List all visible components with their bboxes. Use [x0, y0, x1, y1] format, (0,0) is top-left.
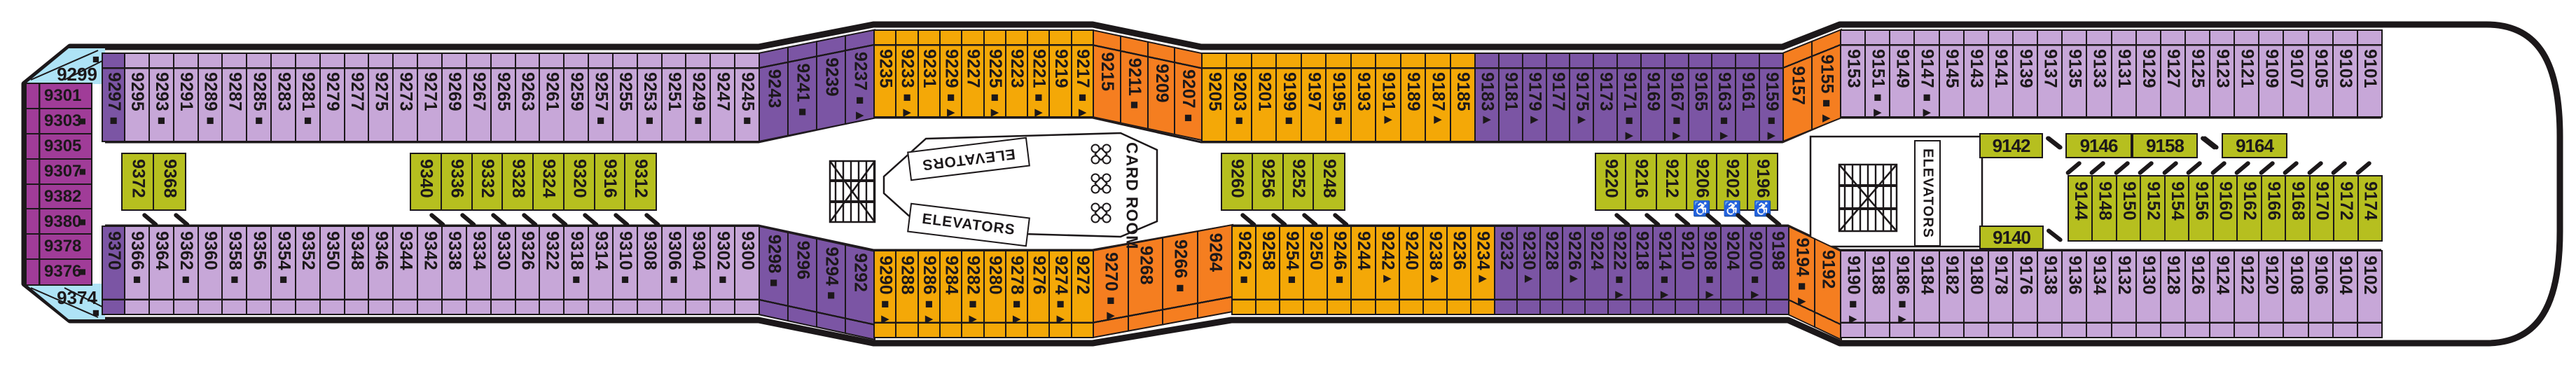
cabin-number: 9219 — [1052, 49, 1069, 88]
elevators-label: ELEVATORS — [1920, 148, 1936, 238]
cabin-9170[interactable]: 9170 — [2309, 175, 2335, 242]
cabin-number: 9346 — [373, 231, 390, 270]
cabin-9184[interactable]: 9184 — [1913, 250, 1940, 338]
cabin-9302[interactable]: 9302■ — [709, 226, 735, 315]
cabin-9175[interactable]: 9175▶ — [1569, 53, 1594, 142]
cabin-9286[interactable]: 9286■▶ — [917, 250, 941, 338]
cabin-9292[interactable]: 9292 — [845, 244, 875, 340]
sofa-bed-marker: ■ — [1626, 114, 1633, 127]
cabin-9209[interactable]: 9209 — [1147, 41, 1176, 135]
cabin-number: 9120 — [2263, 256, 2280, 295]
cabin-9164[interactable]: 9164 — [2222, 133, 2287, 158]
cabin-9206[interactable]: 9206♿ — [1686, 153, 1718, 211]
cabin-9249[interactable]: 9249■ — [685, 53, 711, 142]
sofa-bed-marker: ■ — [279, 273, 287, 286]
cabin-9310[interactable]: 9310■ — [612, 226, 638, 315]
cabin-9326[interactable]: 9326 — [515, 226, 541, 315]
cabin-9186[interactable]: 9186■▶ — [1889, 250, 1916, 338]
cabin-9176[interactable]: 9176 — [2012, 250, 2039, 338]
cabin-number: 9308 — [641, 231, 658, 270]
cabin-9340[interactable]: 9340 — [410, 153, 442, 211]
cabin-9190[interactable]: 9190■▶ — [1840, 250, 1867, 338]
cabin-number: 9137 — [2041, 49, 2058, 88]
cabin-9188[interactable]: 9188 — [1864, 250, 1891, 338]
cabin-9185[interactable]: 9185 — [1450, 53, 1476, 142]
cabin-9248[interactable]: 9248 — [1313, 153, 1345, 211]
cabin-9201[interactable]: 9201 — [1251, 53, 1277, 142]
cabin-9167[interactable]: 9167■▶ — [1664, 53, 1689, 142]
cabin-9230[interactable]: 9230▶ — [1516, 226, 1541, 315]
cabin-9109[interactable]: 9109 — [2258, 29, 2285, 118]
cabin-9278[interactable]: 9278■▶ — [1005, 250, 1029, 338]
sofa-bed-marker: ■ — [133, 273, 141, 286]
cabin-9258[interactable]: 9258 — [1255, 226, 1281, 315]
cabin-number: 9204 — [1724, 231, 1741, 270]
cabin-number: 9203 — [1231, 72, 1248, 111]
cabin-9154[interactable]: 9154 — [2164, 175, 2190, 242]
cabin-number: 9382 — [44, 187, 81, 207]
cabin-9267[interactable]: 9267 — [466, 53, 492, 142]
cabin-9225[interactable]: 9225■▶ — [983, 29, 1007, 118]
cabin-9181[interactable]: 9181 — [1498, 53, 1523, 142]
cabin-9150[interactable]: 9150 — [2116, 175, 2142, 242]
cabin-9328[interactable]: 9328 — [501, 153, 534, 211]
cabin-9126[interactable]: 9126 — [2184, 250, 2211, 338]
cabin-9382[interactable]: 9382 — [25, 183, 92, 210]
cabin-number: 9215 — [1098, 52, 1116, 91]
cabin-9348[interactable]: 9348 — [344, 226, 370, 315]
cabin-9277[interactable]: 9277 — [344, 53, 370, 142]
cabin-9231[interactable]: 9231 — [917, 29, 941, 118]
cabin-9338[interactable]: 9338 — [441, 226, 467, 315]
cabin-9300[interactable]: 9300 — [734, 226, 760, 315]
cabin-9352[interactable]: 9352 — [295, 226, 321, 315]
cabin-9240[interactable]: 9240 — [1399, 226, 1425, 315]
cabin-9131[interactable]: 9131 — [2111, 29, 2138, 118]
cabin-9203[interactable]: 9203■ — [1226, 53, 1252, 142]
cabin-9237[interactable]: 9237■▶ — [845, 29, 875, 125]
cabin-9362[interactable]: 9362■ — [173, 226, 199, 315]
cabin-9132[interactable]: 9132 — [2111, 250, 2138, 338]
cabin-number: 9146 — [2080, 135, 2118, 157]
cabin-number: 9133 — [2091, 49, 2108, 88]
cabin-9208[interactable]: 9208■▶ — [1698, 226, 1722, 315]
cabin-9162[interactable]: 9162 — [2236, 175, 2262, 242]
cabin-number: 9167 — [1668, 72, 1685, 111]
cabin-9202[interactable]: 9202♿ — [1716, 153, 1748, 211]
cabin-9120[interactable]: 9120 — [2258, 250, 2285, 338]
third-berth-marker: ▶ — [947, 107, 955, 118]
cabin-9354[interactable]: 9354■ — [270, 226, 296, 315]
cabin-9360[interactable]: 9360 — [198, 226, 223, 315]
cabin-9218[interactable]: 9218 — [1630, 226, 1654, 315]
cabin-9215[interactable]: 9215 — [1093, 29, 1121, 124]
cabin-9144[interactable]: 9144 — [2068, 175, 2093, 242]
cabin-9156[interactable]: 9156 — [2188, 175, 2214, 242]
cabin-9198[interactable]: 9198 — [1766, 226, 1790, 315]
cabin-9250[interactable]: 9250 — [1303, 226, 1329, 315]
cabin-9159[interactable]: 9159■▶ — [1759, 53, 1784, 142]
cabin-9368[interactable]: 9368 — [153, 153, 186, 211]
cabin-9133[interactable]: 9133 — [2086, 29, 2112, 118]
cabin-9216[interactable]: 9216 — [1625, 153, 1657, 211]
cabin-9342[interactable]: 9342 — [417, 226, 443, 315]
third-berth-marker: ▶ — [1384, 114, 1392, 125]
cabin-9191[interactable]: 9191▶ — [1375, 53, 1401, 142]
cabin-9243[interactable]: 9243 — [759, 46, 789, 142]
section-top-fwd-violet: 9297■ — [102, 53, 124, 142]
cabin-9244[interactable]: 9244 — [1350, 226, 1376, 315]
cabin-9306[interactable]: 9306■ — [661, 226, 687, 315]
cabin-9289[interactable]: 9289■ — [198, 53, 223, 142]
cabin-9212[interactable]: 9212 — [1656, 153, 1688, 211]
cabin-9204[interactable]: 9204 — [1720, 226, 1745, 315]
cabin-9146[interactable]: 9146 — [2065, 133, 2132, 158]
cabin-9264[interactable]: 9264 — [1197, 224, 1233, 319]
cabin-9356[interactable]: 9356 — [246, 226, 272, 315]
cabin-9350[interactable]: 9350 — [319, 226, 345, 315]
cabin-9105[interactable]: 9105 — [2308, 29, 2334, 118]
cabin-9195[interactable]: 9195■ — [1325, 53, 1352, 142]
cabin-9165[interactable]: 9165 — [1688, 53, 1713, 142]
cabin-9254[interactable]: 9254■ — [1279, 226, 1305, 315]
cabin-9284[interactable]: 9284 — [939, 250, 963, 338]
cabin-number: 9356 — [250, 231, 268, 270]
cabin-9145[interactable]: 9145 — [1939, 29, 1965, 118]
cabin-9173[interactable]: 9173 — [1593, 53, 1618, 142]
cabin-9276[interactable]: 9276 — [1027, 250, 1051, 338]
cabin-9370[interactable]: 9370 — [102, 226, 126, 315]
cabin-number: 9238 — [1427, 231, 1444, 270]
cabin-9334[interactable]: 9334 — [466, 226, 492, 315]
cabin-9147[interactable]: 9147■▶ — [1913, 29, 1940, 118]
cabin-9233[interactable]: 9233■▶ — [895, 29, 919, 118]
cabin-9178[interactable]: 9178 — [1988, 250, 2014, 338]
cabin-9336[interactable]: 9336 — [441, 153, 473, 211]
cabin-9158[interactable]: 9158 — [2132, 133, 2198, 158]
cabin-9234[interactable]: 9234▶ — [1470, 226, 1496, 315]
cabin-9294[interactable]: 9294■ — [816, 238, 847, 334]
third-berth-marker: ▶ — [856, 109, 864, 120]
cabin-9299[interactable]: ■9299 — [50, 53, 104, 83]
cabin-9282[interactable]: 9282■▶ — [961, 250, 985, 338]
cabin-9141[interactable]: 9141 — [1988, 29, 2014, 118]
card-room-label: CARD ROOM — [1123, 142, 1142, 249]
sofa-bed-marker: ■ — [1334, 114, 1342, 127]
cabin-9155[interactable]: 9155■▶ — [1811, 29, 1842, 130]
cabin-9263[interactable]: 9263 — [515, 53, 541, 142]
cabin-9222[interactable]: 9222■▶ — [1607, 226, 1632, 315]
cabin-9247[interactable]: 9247 — [709, 53, 735, 142]
cabin-9163[interactable]: 9163■▶ — [1711, 53, 1736, 142]
cabin-9252[interactable]: 9252 — [1282, 153, 1315, 211]
cabin-9193[interactable]: 9193 — [1350, 53, 1377, 142]
cabin-number: 9249 — [690, 72, 707, 111]
cabin-9142[interactable]: 9142 — [1979, 133, 2043, 158]
cabin-9224[interactable]: 9224 — [1584, 226, 1609, 315]
cabin-9245[interactable]: 9245■ — [734, 53, 760, 142]
cabin-9199[interactable]: 9199■ — [1275, 53, 1302, 142]
cabin-9260[interactable]: 9260 — [1221, 153, 1253, 211]
cabin-9151[interactable]: 9151■▶ — [1864, 29, 1891, 118]
stairs-icon — [830, 161, 875, 222]
cabin-9129[interactable]: 9129 — [2135, 29, 2162, 118]
cabin-9269[interactable]: 9269 — [441, 53, 467, 142]
cabin-number: 9298 — [765, 235, 782, 274]
cabin-9187[interactable]: 9187▶ — [1425, 53, 1451, 142]
cabin-9308[interactable]: 9308 — [637, 226, 663, 315]
cabin-number: 9272 — [1074, 256, 1091, 295]
cabin-9232[interactable]: 9232 — [1494, 226, 1518, 315]
cabin-9275[interactable]: 9275 — [368, 53, 394, 142]
third-berth-marker: ▶ — [1874, 107, 1882, 118]
cabin-9364[interactable]: 9364 — [148, 226, 174, 315]
cabin-9108[interactable]: 9108 — [2283, 250, 2309, 338]
cabin-9266[interactable]: 9266■ — [1162, 230, 1198, 326]
cabin-9207[interactable]: 9207■ — [1174, 47, 1203, 141]
cabin-9210[interactable]: 9210 — [1675, 226, 1699, 315]
cabin-9161[interactable]: 9161 — [1735, 53, 1760, 142]
cabin-9303[interactable]: 9303■ — [25, 108, 92, 134]
cabin-9246[interactable]: 9246■ — [1327, 226, 1352, 315]
cabin-9304[interactable]: 9304 — [685, 226, 711, 315]
cabin-9255[interactable]: 9255 — [612, 53, 638, 142]
cabin-9177[interactable]: 9177 — [1546, 53, 1571, 142]
cabin-9238[interactable]: 9238▶ — [1422, 226, 1448, 315]
cabin-number: 9195 — [1330, 72, 1348, 111]
cabin-9101[interactable]: 9101 — [2357, 29, 2383, 118]
cabin-9272[interactable]: 9272 — [1071, 250, 1095, 338]
cabin-9200[interactable]: 9200■▶ — [1743, 226, 1767, 315]
cabin-9124[interactable]: 9124 — [2209, 250, 2236, 338]
cabin-9314[interactable]: 9314 — [588, 226, 614, 315]
cabin-9148[interactable]: 9148 — [2091, 175, 2117, 242]
cabin-9104[interactable]: 9104 — [2332, 250, 2359, 338]
cabin-9320[interactable]: 9320 — [563, 153, 595, 211]
cabin-9324[interactable]: 9324 — [532, 153, 565, 211]
cabin-number: 9304 — [690, 231, 707, 270]
cabin-9172[interactable]: 9172 — [2333, 175, 2359, 242]
cabin-number: 9122 — [2238, 256, 2255, 295]
cabin-number: 9294 — [822, 247, 840, 286]
cabin-9160[interactable]: 9160 — [2213, 175, 2238, 242]
cabin-9135[interactable]: 9135 — [2061, 29, 2088, 118]
cabin-9103[interactable]: 9103 — [2332, 29, 2359, 118]
cabin-9189[interactable]: 9189 — [1400, 53, 1427, 142]
cabin-9376[interactable]: 9376■ — [25, 258, 92, 285]
cabin-9316[interactable]: 9316 — [594, 153, 626, 211]
cabin-9241[interactable]: 9241■ — [787, 41, 818, 137]
cabin-9253[interactable]: 9253■ — [637, 53, 663, 142]
cabin-9106[interactable]: 9106 — [2308, 250, 2334, 338]
cabin-9229[interactable]: 9229■▶ — [939, 29, 963, 118]
cabin-9283[interactable]: 9283 — [270, 53, 296, 142]
cabin-number: 9192 — [1819, 250, 1836, 289]
cabin-number: 9301 — [44, 86, 81, 106]
cabin-9287[interactable]: 9287 — [221, 53, 247, 142]
cabin-9182[interactable]: 9182 — [1939, 250, 1965, 338]
cabin-9149[interactable]: 9149 — [1889, 29, 1916, 118]
cabin-9205[interactable]: 9205 — [1201, 53, 1228, 142]
sofa-bed-marker: ■ — [230, 273, 238, 286]
cabin-9211[interactable]: 9211■ — [1120, 35, 1149, 130]
cabin-9153[interactable]: 9153 — [1840, 29, 1867, 118]
cabin-9152[interactable]: 9152 — [2140, 175, 2166, 242]
cabin-9273[interactable]: 9273 — [392, 53, 418, 142]
cabin-9307[interactable]: 9307■ — [25, 158, 92, 185]
cabin-9228[interactable]: 9228 — [1539, 226, 1564, 315]
cabin-number: 9130 — [2140, 256, 2157, 295]
cabin-9280[interactable]: 9280 — [983, 250, 1007, 338]
cabin-9102[interactable]: 9102 — [2357, 250, 2383, 338]
cabin-9312[interactable]: 9312 — [624, 153, 656, 211]
cabin-9295[interactable]: 9295 — [124, 53, 150, 142]
cabin-9139[interactable]: 9139 — [2012, 29, 2039, 118]
cabin-9194[interactable]: 9194■▶ — [1788, 226, 1816, 328]
cabin-number: 9250 — [1307, 231, 1324, 270]
cabin-number: 9105 — [2312, 49, 2329, 88]
cabin-9344[interactable]: 9344 — [392, 226, 418, 315]
cabin-9279[interactable]: 9279 — [319, 53, 345, 142]
cabin-9197[interactable]: 9197 — [1301, 53, 1327, 142]
cabin-9180[interactable]: 9180 — [1963, 250, 1990, 338]
cabin-number: 9263 — [519, 72, 536, 111]
cabin-9223[interactable]: 9223 — [1005, 29, 1029, 118]
cabin-9261[interactable]: 9261 — [539, 53, 565, 142]
cabin-9226[interactable]: 9226▶ — [1562, 226, 1586, 315]
cabin-9219[interactable]: 9219 — [1048, 29, 1072, 118]
third-berth-marker: ▶ — [1383, 273, 1392, 284]
sofa-bed-marker: ■ — [1013, 298, 1020, 311]
cabin-9257[interactable]: 9257■ — [588, 53, 614, 142]
cabin-9297[interactable]: 9297■ — [102, 53, 126, 142]
cabin-9346[interactable]: 9346 — [368, 226, 394, 315]
cabin-number: 9259 — [567, 72, 585, 111]
cabin-9366[interactable]: 9366■ — [124, 226, 150, 315]
cabin-9271[interactable]: 9271 — [417, 53, 443, 142]
cabin-9270[interactable]: 9270■▶ — [1093, 243, 1129, 338]
cabin-9322[interactable]: 9322 — [539, 226, 565, 315]
cabin-9220[interactable]: 9220 — [1595, 153, 1627, 211]
cabin-9239[interactable]: 9239 — [816, 35, 847, 131]
cabin-9143[interactable]: 9143 — [1963, 29, 1990, 118]
cabin-number: 9178 — [1992, 256, 2009, 295]
cabin-9305[interactable]: 9305 — [25, 133, 92, 160]
cabin-9358[interactable]: 9358■ — [221, 226, 247, 315]
cabin-number: 9292 — [851, 253, 868, 292]
cabin-9262[interactable]: 9262■ — [1231, 226, 1257, 315]
cabin-9125[interactable]: 9125 — [2184, 29, 2211, 118]
cabin-9107[interactable]: 9107 — [2283, 29, 2309, 118]
sofa-bed-marker: ■ — [1130, 99, 1138, 112]
cabin-9183[interactable]: 9183▶ — [1474, 53, 1500, 142]
cabin-9169[interactable]: 9169 — [1640, 53, 1666, 142]
cabin-9127[interactable]: 9127 — [2160, 29, 2187, 118]
cabin-number: 9303 — [44, 111, 81, 131]
cabin-9251[interactable]: 9251 — [661, 53, 687, 142]
cabin-9179[interactable]: 9179▶ — [1522, 53, 1547, 142]
cabin-9123[interactable]: 9123 — [2209, 29, 2236, 118]
cabin-9214[interactable]: 9214■▶ — [1652, 226, 1677, 315]
cabin-9242[interactable]: 9242▶ — [1375, 226, 1401, 315]
cabin-number: 9261 — [543, 72, 561, 111]
cabin-9374[interactable]: 9374■ — [50, 289, 104, 319]
cabin-9166[interactable]: 9166 — [2261, 175, 2287, 242]
cabin-9288[interactable]: 9288 — [895, 250, 919, 338]
section-bot-mid-gold: 9290■▶92889286■▶92849282■▶92809278■▶9276… — [873, 250, 1093, 338]
cabin-9196[interactable]: 9196♿ — [1747, 153, 1779, 211]
third-berth-marker: ▶ — [1570, 273, 1579, 284]
cabin-9301[interactable]: 9301 — [25, 83, 92, 109]
cabin-number: 9376 — [44, 262, 81, 282]
cabin-9217[interactable]: 9217■▶ — [1071, 29, 1095, 118]
cabin-number: 9141 — [1992, 49, 2009, 88]
cabin-9265[interactable]: 9265 — [490, 53, 516, 142]
cabin-number: 9291 — [177, 72, 195, 111]
cabin-9285[interactable]: 9285■ — [246, 53, 272, 142]
cabin-9122[interactable]: 9122 — [2234, 250, 2260, 338]
cabin-number: 9201 — [1255, 72, 1273, 111]
cabin-9174[interactable]: 9174 — [2357, 175, 2383, 242]
sofa-bed-marker: ■ — [856, 93, 864, 106]
cabin-number: 9322 — [543, 231, 561, 270]
cabin-number: 9191 — [1380, 72, 1397, 111]
cabin-9332[interactable]: 9332 — [471, 153, 504, 211]
cabin-number: 9247 — [714, 72, 731, 111]
cabin-number: 9287 — [226, 72, 244, 111]
cabin-9236[interactable]: 9236 — [1446, 226, 1472, 315]
cabin-9134[interactable]: 9134 — [2086, 250, 2112, 338]
cabin-9291[interactable]: 9291 — [173, 53, 199, 142]
cabin-9138[interactable]: 9138 — [2037, 250, 2063, 338]
cabin-9290[interactable]: 9290■▶ — [873, 250, 897, 338]
cabin-9130[interactable]: 9130 — [2135, 250, 2162, 338]
cabin-9136[interactable]: 9136 — [2061, 250, 2088, 338]
cabin-number: 9252 — [1289, 159, 1307, 198]
cabin-9296[interactable]: 9296 — [787, 232, 818, 328]
cabin-9318[interactable]: 9318■ — [563, 226, 589, 315]
sofa-bed-marker: ■ — [903, 91, 910, 104]
cabin-9128[interactable]: 9128 — [2160, 250, 2187, 338]
cabin-9227[interactable]: 9227 — [961, 29, 985, 118]
cabin-number: 9126 — [2189, 256, 2206, 295]
cabin-9235[interactable]: 9235 — [873, 29, 897, 118]
cabin-9298[interactable]: 9298■ — [759, 226, 789, 321]
cabin-9274[interactable]: 9274■▶ — [1048, 250, 1072, 338]
cabin-9330[interactable]: 9330 — [490, 226, 516, 315]
cabin-number: 9101 — [2361, 49, 2378, 88]
cabin-9171[interactable]: 9171■▶ — [1616, 53, 1642, 142]
cabin-9192[interactable]: 9192 — [1814, 237, 1842, 340]
cabin-9281[interactable]: 9281■ — [295, 53, 321, 142]
cabin-9140[interactable]: 9140 — [1979, 226, 2044, 249]
cabin-9378[interactable]: 9378 — [25, 233, 92, 260]
cabin-9137[interactable]: 9137 — [2037, 29, 2063, 118]
cabin-9259[interactable]: 9259 — [563, 53, 589, 142]
cabin-number: 9245 — [738, 72, 756, 111]
cabin-number: 9354 — [275, 231, 292, 270]
cabin-9256[interactable]: 9256 — [1252, 153, 1284, 211]
cabin-9221[interactable]: 9221■▶ — [1027, 29, 1051, 118]
third-berth-marker: ▶ — [1525, 273, 1533, 284]
cabin-9157[interactable]: 9157 — [1782, 41, 1813, 142]
cabin-9121[interactable]: 9121 — [2234, 29, 2260, 118]
cabin-9372[interactable]: 9372 — [121, 153, 155, 211]
cabin-9293[interactable]: 9293■ — [148, 53, 174, 142]
cabin-number: 9216 — [1633, 159, 1650, 198]
cabin-9380[interactable]: 9380■ — [25, 208, 92, 235]
cabin-9168[interactable]: 9168 — [2285, 175, 2311, 242]
